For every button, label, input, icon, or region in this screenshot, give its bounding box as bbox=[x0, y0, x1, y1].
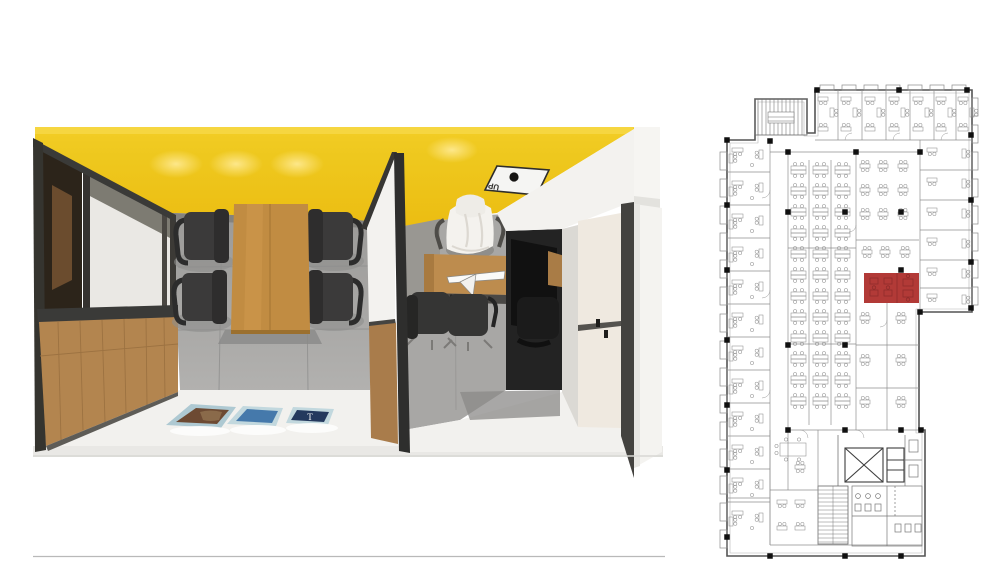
svg-text:T: T bbox=[307, 412, 313, 422]
